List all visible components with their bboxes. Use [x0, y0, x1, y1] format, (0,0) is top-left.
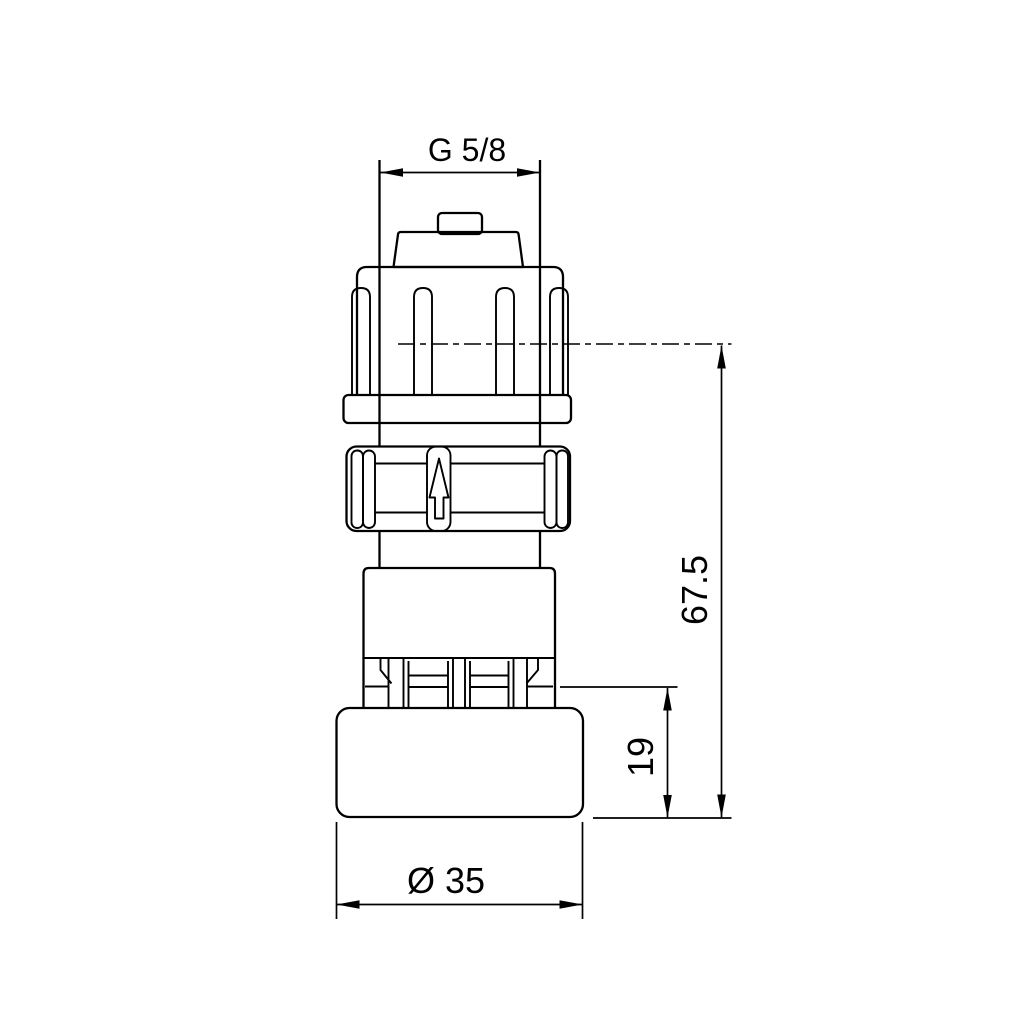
- locking-ring: [347, 447, 571, 532]
- arrow-up-icon: [717, 346, 726, 369]
- cap-body: [357, 267, 563, 396]
- label-lower-height: 19: [620, 737, 661, 777]
- cap-grip-ribs: [352, 288, 568, 396]
- neck-lower-lines: [380, 531, 541, 568]
- ring-end-details: [352, 451, 569, 529]
- cap-flange: [344, 395, 572, 423]
- arrow-left-icon: [337, 900, 360, 908]
- arrow-down-icon: [663, 795, 672, 818]
- coupling-dimension-drawing: G 5/8 67.5 19: [0, 0, 1024, 1024]
- part-details: [352, 288, 569, 708]
- part-outline: [337, 160, 584, 817]
- arrow-right-icon: [560, 900, 583, 908]
- label-overall-height: 67.5: [674, 555, 715, 625]
- arrow-right-icon: [517, 168, 540, 176]
- dimension-overall-height: 67.5: [593, 346, 732, 819]
- dimension-lower-height: 19: [560, 687, 678, 818]
- technical-drawing-canvas: G 5/8 67.5 19: [0, 0, 1024, 1024]
- arrow-up-icon: [663, 688, 672, 711]
- label-outer-diameter: Ø 35: [407, 860, 485, 901]
- dimension-thread-size: G 5/8: [380, 132, 540, 177]
- cap-crown: [394, 232, 524, 267]
- dimension-outer-diameter: Ø 35: [337, 822, 583, 919]
- arrow-down-icon: [717, 795, 726, 818]
- neck-upper-lines: [380, 160, 541, 446]
- arrow-left-icon: [380, 168, 403, 176]
- flow-direction-arrow-icon: [430, 459, 449, 519]
- label-thread-size: G 5/8: [428, 132, 506, 168]
- bottom-cylinder: [337, 708, 584, 817]
- block-castellation: [364, 658, 556, 708]
